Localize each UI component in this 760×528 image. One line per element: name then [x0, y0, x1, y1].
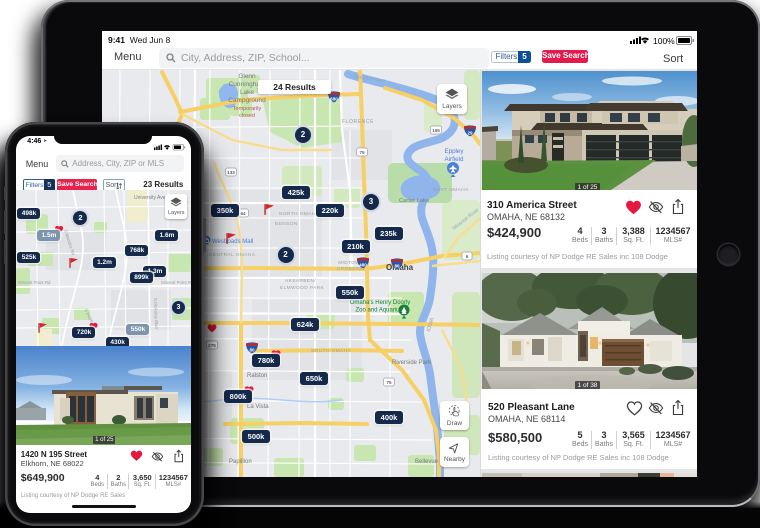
svg-text:Mineral Point Rd: Mineral Point Rd — [18, 280, 51, 285]
svg-text:Mineral Point Rd: Mineral Point Rd — [161, 280, 190, 285]
svg-text:University Ave: University Ave — [134, 195, 166, 201]
